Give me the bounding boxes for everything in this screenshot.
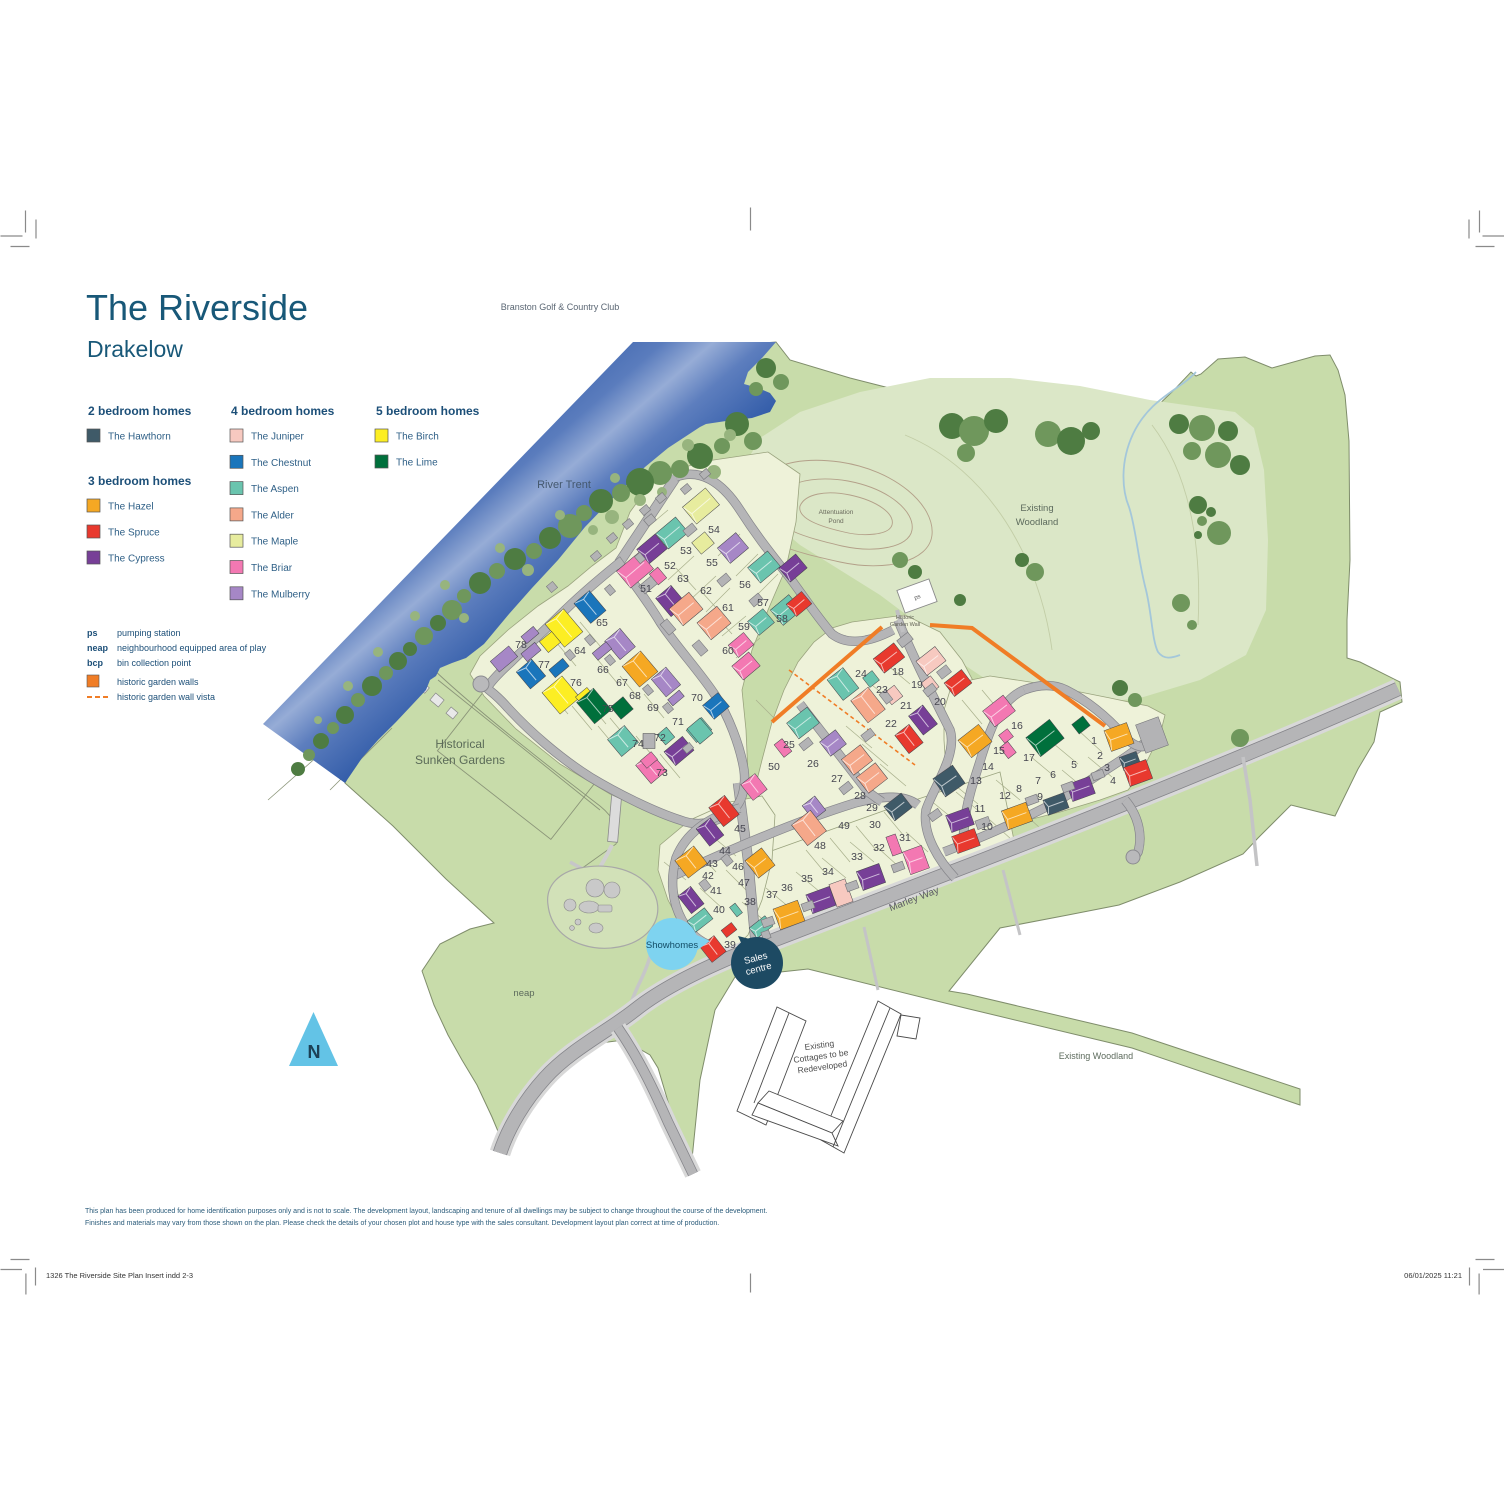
svg-text:31: 31 (899, 832, 911, 844)
svg-text:The Hawthorn: The Hawthorn (108, 432, 171, 443)
svg-text:78: 78 (515, 639, 527, 651)
svg-text:neighbourhood equipped area of: neighbourhood equipped area of play (117, 643, 267, 653)
svg-text:historic garden wall vista: historic garden wall vista (117, 692, 215, 702)
svg-text:Historical: Historical (435, 737, 484, 751)
svg-text:The Alder: The Alder (251, 510, 294, 521)
svg-text:29: 29 (866, 802, 878, 814)
svg-text:27: 27 (831, 773, 843, 785)
svg-text:36: 36 (781, 882, 793, 894)
svg-text:11: 11 (975, 803, 986, 815)
svg-text:19: 19 (911, 679, 923, 691)
svg-text:Attentuation: Attentuation (819, 509, 854, 516)
svg-text:76: 76 (570, 677, 582, 689)
svg-text:47: 47 (738, 877, 750, 889)
svg-text:9: 9 (1037, 791, 1043, 803)
svg-text:The Hazel: The Hazel (108, 502, 154, 513)
svg-text:ps: ps (87, 628, 98, 638)
svg-text:65: 65 (596, 617, 608, 629)
svg-text:The Mulberry: The Mulberry (251, 589, 310, 600)
svg-text:58: 58 (776, 613, 788, 625)
svg-text:The Riverside: The Riverside (86, 287, 308, 328)
svg-text:62: 62 (700, 585, 712, 597)
svg-text:23: 23 (876, 684, 888, 696)
svg-text:2: 2 (1097, 750, 1103, 762)
svg-text:15: 15 (993, 745, 1005, 757)
svg-text:The Juniper: The Juniper (251, 432, 304, 443)
svg-text:37: 37 (766, 889, 778, 901)
svg-text:24: 24 (855, 668, 867, 680)
svg-text:06/01/2025 11:21: 06/01/2025 11:21 (1404, 1271, 1462, 1280)
svg-text:73: 73 (656, 767, 668, 779)
svg-text:64: 64 (574, 645, 586, 657)
svg-text:The Cypress: The Cypress (108, 554, 165, 565)
svg-text:Sunken Gardens: Sunken Gardens (415, 753, 505, 767)
svg-text:5 bedroom homes: 5 bedroom homes (376, 404, 480, 418)
svg-text:40: 40 (713, 904, 725, 916)
svg-text:20: 20 (934, 696, 946, 708)
svg-text:38: 38 (744, 896, 756, 908)
svg-text:70: 70 (691, 692, 703, 704)
svg-text:67: 67 (616, 677, 628, 689)
svg-text:77: 77 (538, 659, 550, 671)
svg-text:32: 32 (873, 842, 885, 854)
svg-text:historic garden walls: historic garden walls (117, 677, 199, 687)
svg-text:35: 35 (801, 873, 813, 885)
svg-text:bcp: bcp (87, 658, 104, 668)
svg-text:71: 71 (672, 716, 684, 728)
svg-text:2 bedroom homes: 2 bedroom homes (88, 404, 192, 418)
svg-text:28: 28 (854, 790, 866, 802)
svg-text:This plan has been produced fo: This plan has been produced for home ide… (85, 1208, 767, 1215)
svg-text:pumping station: pumping station (117, 628, 181, 638)
svg-text:16: 16 (1011, 720, 1023, 732)
svg-text:Showhomes: Showhomes (646, 940, 699, 951)
svg-text:72: 72 (654, 732, 666, 744)
svg-text:63: 63 (677, 573, 689, 585)
svg-text:4: 4 (1110, 775, 1116, 787)
svg-text:The Lime: The Lime (396, 458, 438, 469)
svg-text:55: 55 (706, 557, 718, 569)
svg-text:22: 22 (885, 718, 897, 730)
svg-text:3: 3 (1104, 762, 1110, 774)
svg-text:48: 48 (814, 840, 826, 852)
svg-text:34: 34 (822, 866, 834, 878)
svg-text:59: 59 (738, 621, 750, 633)
svg-text:Pond: Pond (828, 518, 844, 525)
svg-text:33: 33 (851, 851, 863, 863)
svg-text:69: 69 (647, 702, 659, 714)
svg-text:21: 21 (900, 700, 912, 712)
svg-text:Woodland: Woodland (1016, 517, 1059, 528)
svg-text:68: 68 (629, 690, 641, 702)
svg-text:57: 57 (757, 597, 769, 609)
svg-text:26: 26 (807, 758, 819, 770)
svg-text:56: 56 (739, 579, 751, 591)
svg-text:41: 41 (710, 885, 722, 897)
svg-text:4 bedroom homes: 4 bedroom homes (231, 404, 335, 418)
svg-text:1: 1 (1091, 735, 1097, 747)
svg-text:46: 46 (732, 861, 744, 873)
svg-text:Drakelow: Drakelow (87, 336, 183, 362)
svg-text:neap: neap (513, 988, 534, 999)
svg-text:The Aspen: The Aspen (251, 484, 299, 495)
svg-text:River Trent: River Trent (537, 479, 591, 491)
svg-text:42: 42 (702, 870, 714, 882)
svg-text:30: 30 (869, 819, 881, 831)
svg-text:5: 5 (1071, 759, 1077, 771)
svg-text:74: 74 (632, 738, 644, 750)
svg-text:14: 14 (982, 761, 994, 773)
svg-text:Existing: Existing (1020, 503, 1053, 514)
svg-text:25: 25 (783, 739, 795, 751)
svg-text:3 bedroom homes: 3 bedroom homes (88, 474, 192, 488)
svg-text:45: 45 (734, 823, 746, 835)
svg-text:60: 60 (722, 645, 734, 657)
svg-text:N: N (308, 1042, 321, 1062)
svg-text:10: 10 (981, 821, 993, 833)
svg-text:61: 61 (722, 602, 734, 614)
svg-text:6: 6 (1050, 769, 1056, 781)
svg-text:8: 8 (1016, 783, 1022, 795)
svg-text:44: 44 (719, 845, 731, 857)
svg-text:The Maple: The Maple (251, 537, 299, 548)
svg-text:75: 75 (602, 703, 614, 715)
svg-text:Branston Golf & Country Club: Branston Golf & Country Club (501, 302, 620, 312)
svg-text:Historic: Historic (896, 615, 915, 621)
svg-text:The Chestnut: The Chestnut (251, 458, 311, 469)
svg-text:1326 The Riverside Site Plan I: 1326 The Riverside Site Plan Insert indd… (46, 1271, 193, 1280)
svg-text:43: 43 (706, 858, 718, 870)
svg-text:17: 17 (1023, 752, 1035, 764)
svg-text:66: 66 (597, 664, 609, 676)
svg-text:51: 51 (640, 583, 652, 595)
svg-text:7: 7 (1035, 775, 1041, 787)
svg-text:54: 54 (708, 524, 720, 536)
svg-text:18: 18 (892, 666, 904, 678)
svg-text:Garden Wall: Garden Wall (890, 622, 920, 628)
svg-text:53: 53 (680, 545, 692, 557)
svg-text:neap: neap (87, 643, 109, 653)
svg-text:50: 50 (768, 761, 780, 773)
svg-text:39: 39 (724, 939, 736, 951)
svg-text:13: 13 (970, 775, 982, 787)
svg-text:The Briar: The Briar (251, 563, 293, 574)
svg-text:bin collection point: bin collection point (117, 658, 192, 668)
svg-text:Finishes and materials may var: Finishes and materials may vary from tho… (85, 1220, 719, 1227)
svg-text:The Spruce: The Spruce (108, 528, 160, 539)
svg-text:The Birch: The Birch (396, 432, 439, 443)
svg-text:Existing Woodland: Existing Woodland (1059, 1051, 1133, 1061)
svg-text:12: 12 (999, 790, 1011, 802)
svg-text:49: 49 (838, 820, 850, 832)
svg-text:52: 52 (664, 560, 676, 572)
